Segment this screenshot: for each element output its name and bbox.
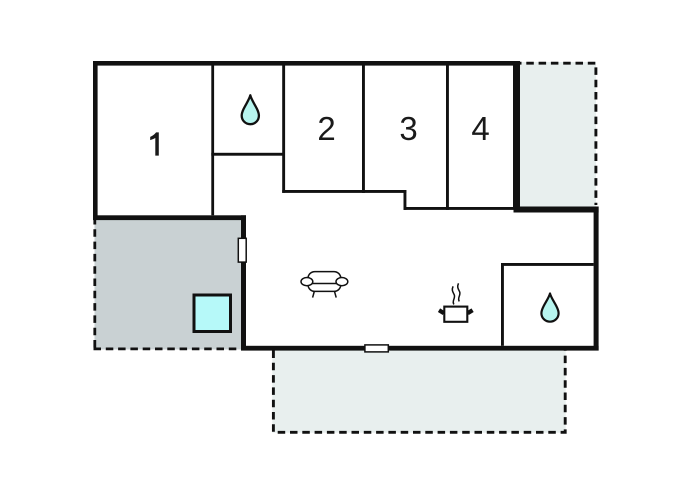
svg-text:4: 4 — [471, 110, 489, 147]
svg-text:2: 2 — [317, 110, 335, 147]
svg-text:3: 3 — [399, 110, 417, 147]
